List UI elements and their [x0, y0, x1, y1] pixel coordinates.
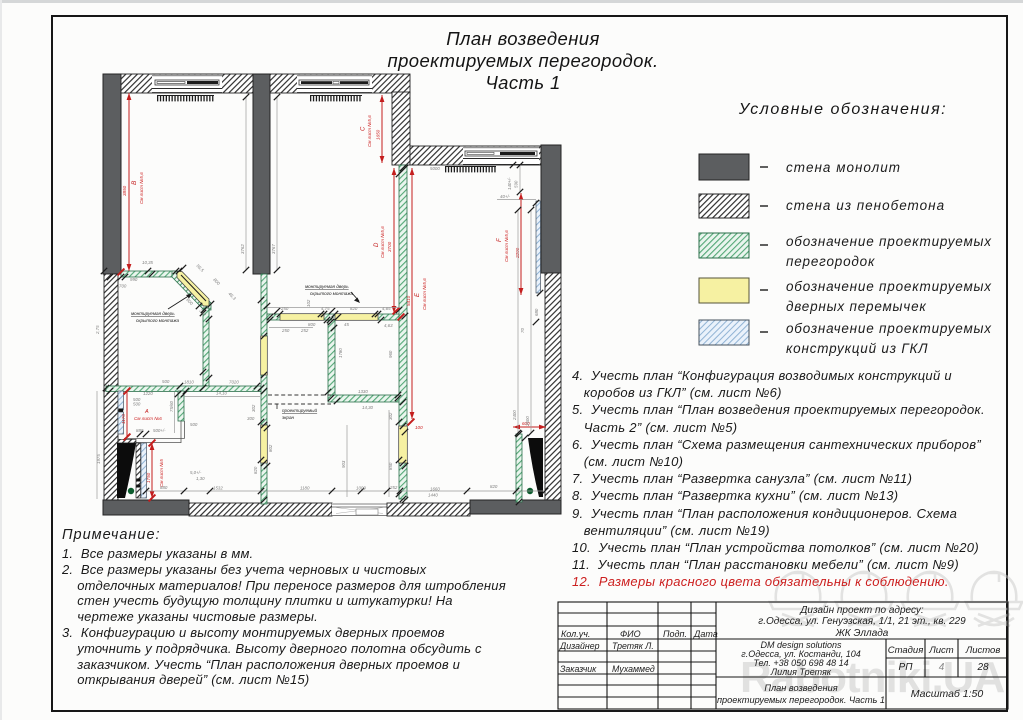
svg-text:3762: 3762: [240, 244, 245, 254]
svg-text:140+/-: 140+/-: [507, 177, 512, 190]
svg-text:1660: 1660: [430, 487, 440, 492]
svg-text:См лист №5,6: См лист №5,6: [504, 230, 509, 262]
svg-text:См лист №5,6: См лист №5,6: [367, 115, 372, 147]
svg-text:302: 302: [251, 404, 256, 412]
svg-text:56,5: 56,5: [195, 263, 205, 273]
svg-text:1330: 1330: [358, 389, 368, 394]
svg-text:250: 250: [280, 306, 289, 311]
svg-text:800: 800: [212, 277, 221, 286]
svg-text:46,3: 46,3: [227, 291, 237, 301]
svg-text:F: F: [497, 238, 503, 242]
svg-text:680: 680: [534, 308, 539, 316]
svg-text:скрытого монтажа: скрытого монтажа: [136, 318, 179, 323]
svg-text:903: 903: [341, 460, 346, 468]
svg-text:1810: 1810: [184, 380, 194, 385]
svg-text:1170: 1170: [121, 414, 126, 424]
svg-text:1,30: 1,30: [196, 476, 205, 481]
svg-text:820: 820: [253, 466, 258, 474]
svg-text:См лист №6: См лист №6: [134, 416, 162, 421]
svg-text:40+/-: 40+/-: [500, 194, 511, 199]
svg-text:75/60: 75/60: [169, 400, 174, 412]
svg-text:820: 820: [350, 306, 358, 311]
svg-text:102: 102: [306, 299, 311, 307]
svg-text:5,0+/-: 5,0+/-: [190, 470, 202, 475]
svg-text:1532: 1532: [213, 486, 223, 491]
svg-text:1750: 1750: [146, 472, 151, 483]
svg-text:2,75: 2,75: [95, 325, 100, 335]
svg-text:500: 500: [162, 379, 170, 384]
svg-text:4,63: 4,63: [384, 323, 393, 328]
svg-text:5000: 5000: [430, 166, 440, 171]
svg-text:820: 820: [490, 484, 498, 489]
svg-text:См лист №5,6: См лист №5,6: [380, 226, 385, 258]
svg-text:монтируемая дверь: монтируемая дверь: [305, 284, 349, 289]
svg-text:302: 302: [388, 412, 393, 420]
svg-text:1220: 1220: [143, 391, 153, 396]
svg-text:А: А: [144, 409, 149, 415]
svg-text:3700: 3700: [387, 241, 392, 252]
svg-text:2400: 2400: [512, 410, 517, 421]
svg-text:2600: 2600: [525, 416, 530, 427]
svg-text:4,75: 4,75: [321, 306, 330, 311]
svg-text:См лист №5,6: См лист №5,6: [139, 172, 144, 204]
svg-text:45: 45: [344, 322, 349, 327]
svg-text:1780: 1780: [338, 348, 343, 358]
svg-text:экран: экран: [282, 415, 295, 420]
svg-text:880: 880: [160, 485, 168, 490]
svg-text:2290: 2290: [515, 247, 520, 259]
svg-text:850: 850: [388, 462, 393, 470]
svg-text:1975: 1975: [96, 454, 101, 464]
svg-text:14,30: 14,30: [362, 405, 374, 410]
svg-text:70: 70: [520, 328, 525, 333]
svg-text:См лист №5,6: См лист №5,6: [422, 278, 427, 310]
svg-text:800: 800: [308, 322, 316, 327]
svg-text:500: 500: [133, 402, 141, 407]
svg-text:700: 700: [119, 284, 127, 289]
svg-text:В: В: [131, 180, 138, 185]
svg-text:960: 960: [388, 350, 393, 358]
svg-text:7020: 7020: [229, 380, 239, 385]
svg-text:590: 590: [514, 180, 519, 188]
svg-text:1000: 1000: [356, 486, 366, 491]
svg-text:4,65: 4,65: [382, 306, 391, 311]
svg-text:10,35: 10,35: [142, 260, 154, 265]
svg-text:1180: 1180: [300, 486, 310, 491]
svg-text:250: 250: [281, 328, 290, 333]
svg-text:Е: Е: [415, 292, 421, 297]
svg-text:500: 500: [190, 422, 198, 427]
svg-text:1440: 1440: [428, 493, 438, 498]
svg-text:проектируемый: проектируемый: [282, 407, 318, 413]
svg-text:3850: 3850: [122, 185, 127, 196]
svg-text:3767: 3767: [271, 244, 276, 254]
svg-text:С: С: [361, 126, 367, 131]
svg-text:500+/-: 500+/-: [153, 428, 166, 433]
svg-text:802: 802: [268, 444, 273, 452]
svg-text:252: 252: [389, 485, 398, 490]
svg-text:990: 990: [130, 277, 138, 282]
svg-text:300: 300: [247, 416, 255, 421]
svg-text:252: 252: [300, 328, 309, 333]
svg-text:1650: 1650: [376, 129, 381, 140]
svg-text:14,10: 14,10: [216, 391, 228, 396]
svg-text:100: 100: [415, 425, 423, 430]
svg-text:монтируемая дверь: монтируемая дверь: [131, 311, 175, 316]
svg-text:См лист №5: См лист №5: [159, 459, 164, 487]
svg-text:5410: 5410: [406, 295, 411, 306]
svg-text:скрытого монтажа: скрытого монтажа: [310, 291, 353, 296]
